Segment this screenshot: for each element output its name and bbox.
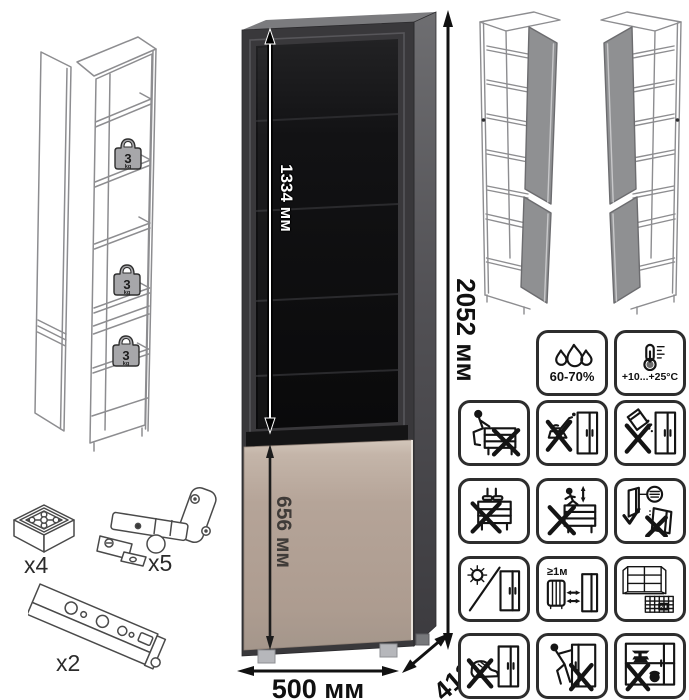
no-abrasives-tile <box>614 400 686 466</box>
no-kicking-icon <box>464 640 524 692</box>
cabinet-foot <box>258 650 275 663</box>
load-unit: kg <box>125 164 131 170</box>
no-standing-icon <box>464 485 524 537</box>
ventilation-acclimatize-icon: 21 <box>620 563 680 615</box>
bottom-door-height-label: 656 мм <box>267 482 299 582</box>
temperature-label: +10...+25°C <box>622 372 678 383</box>
thermometer-icon <box>630 343 670 371</box>
heat-distance-tile: ≥1м <box>536 556 608 622</box>
no-standing-tile <box>458 478 530 544</box>
no-climbing-icon <box>542 485 602 537</box>
no-dragging-icon <box>542 640 602 692</box>
no-dragging-tile <box>536 633 608 699</box>
cabinet-foot <box>416 634 429 645</box>
no-overloading-tile <box>614 633 686 699</box>
total-height-label: 2052 мм <box>450 275 482 385</box>
hinge-count-label: x5 <box>148 550 172 577</box>
no-solvents-tile <box>536 400 608 466</box>
cabinet-side-panel <box>414 12 436 646</box>
acclimatize-tile: 21 <box>614 556 686 622</box>
no-abrasive-powder-icon <box>620 407 680 459</box>
load-unit: kg <box>124 290 130 296</box>
foot-glide-hardware <box>6 496 82 558</box>
no-direct-sunlight-icon <box>464 563 524 615</box>
carry-upright-icon <box>620 485 680 537</box>
heat-source-distance-icon: ≥1м <box>542 563 602 615</box>
foot-count-label: x4 <box>24 552 48 579</box>
heat-distance-label: ≥1м <box>547 566 568 578</box>
product-sheet: 3 kg 3 kg 3 kg <box>0 0 689 700</box>
door-handle-dot <box>482 118 486 122</box>
humidity-label: 60-70% <box>550 370 595 383</box>
width-label: 500 мм <box>240 674 396 700</box>
load-unit: kg <box>123 361 129 367</box>
glass-door-height-label: 1334 мм <box>270 148 302 248</box>
door-variant-left-wireframe <box>472 8 576 326</box>
no-oil-can-icon <box>542 407 602 459</box>
water-drops-icon <box>549 343 595 369</box>
rail-count-label: x2 <box>56 650 80 677</box>
no-climbing-tile <box>536 478 608 544</box>
cabinet-render <box>232 4 442 672</box>
humidity-tile: 60-70% <box>536 330 608 396</box>
no-sunlight-tile <box>458 556 530 622</box>
no-overloading-icon <box>620 640 680 692</box>
open-cabinet-wireframe: 3 kg 3 kg 3 kg <box>14 30 219 455</box>
rail-hardware <box>28 578 184 690</box>
no-sitting-icon <box>464 407 524 459</box>
no-sitting-tile <box>458 400 530 466</box>
cabinet-foot <box>380 644 397 657</box>
upper-door-panel <box>525 27 557 204</box>
door-variant-right-wireframe <box>585 8 689 326</box>
temperature-tile: +10...+25°C <box>614 330 686 396</box>
no-kicking-tile <box>458 633 530 699</box>
acclimatization-days-label: 21 <box>660 605 666 611</box>
carry-upright-tile <box>614 478 686 544</box>
